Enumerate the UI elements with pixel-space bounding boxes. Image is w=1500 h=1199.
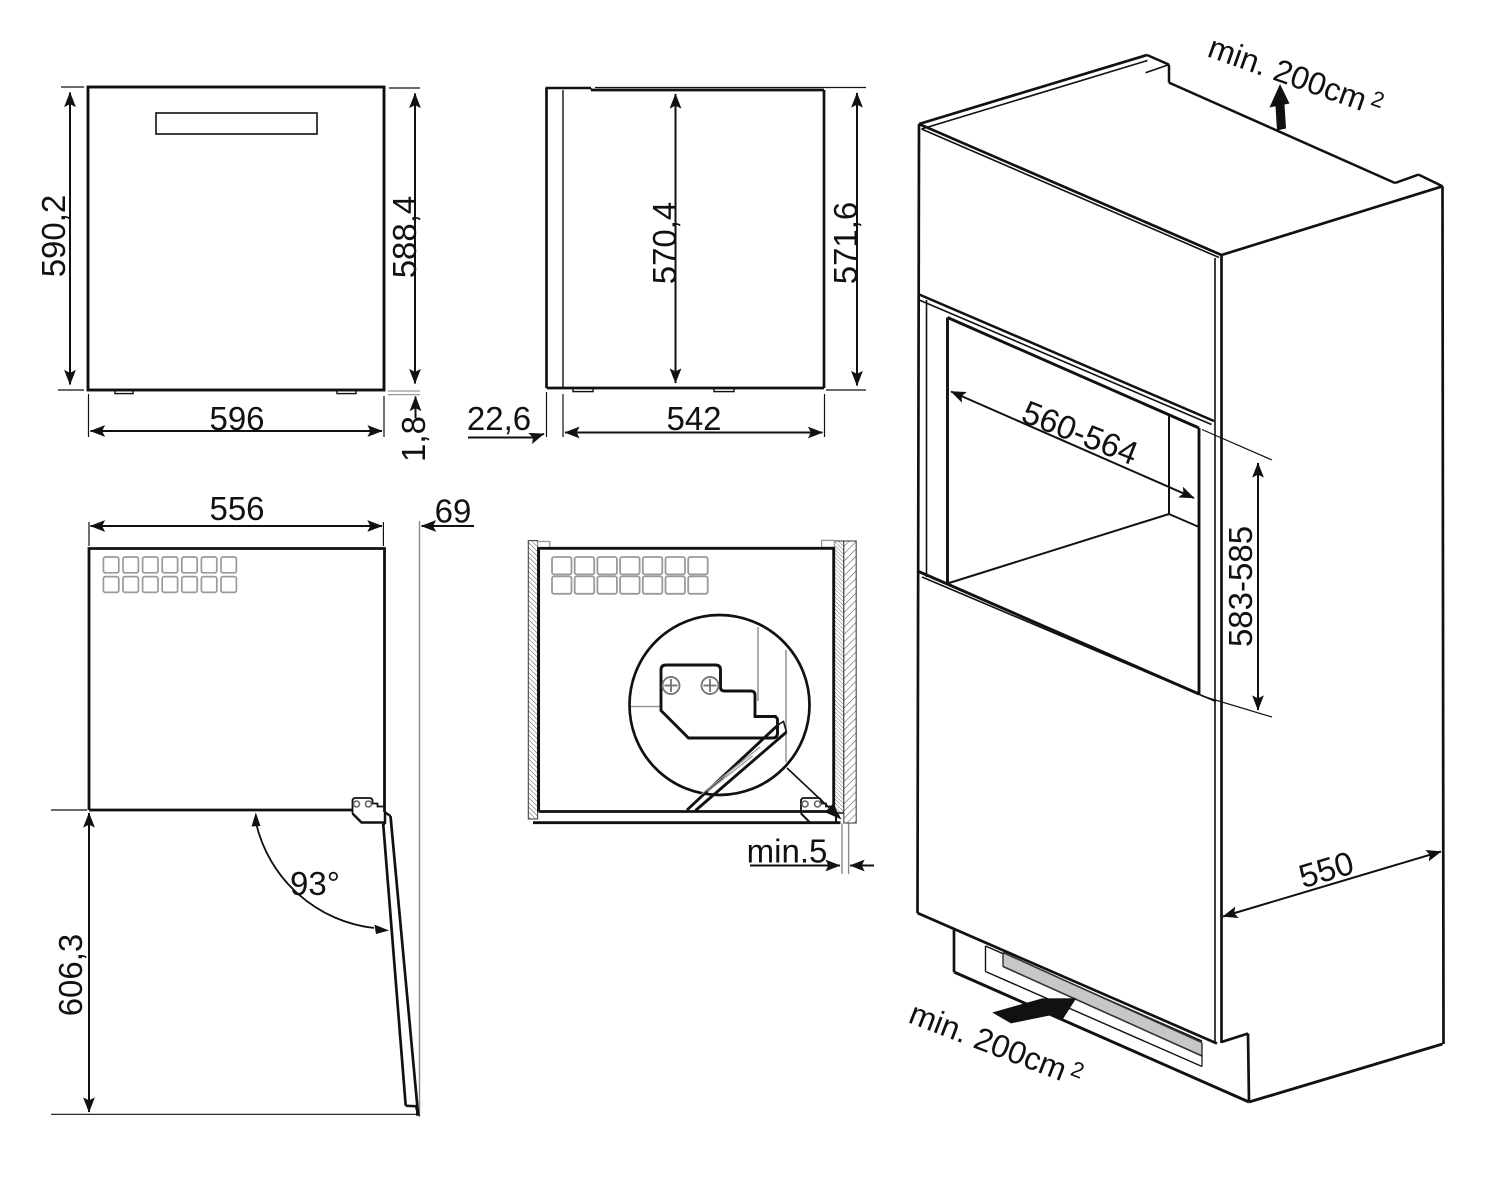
svg-text:583-585: 583-585 — [1222, 526, 1259, 647]
svg-text:93°: 93° — [290, 865, 340, 902]
svg-text:570,4: 570,4 — [646, 202, 683, 285]
svg-text:588,4: 588,4 — [386, 196, 423, 279]
svg-text:1,8: 1,8 — [395, 416, 432, 462]
svg-text:590,2: 590,2 — [35, 195, 72, 278]
svg-text:596: 596 — [209, 400, 264, 437]
svg-text:69: 69 — [435, 493, 472, 530]
svg-text:22,6: 22,6 — [467, 400, 531, 437]
svg-text:606,3: 606,3 — [52, 934, 89, 1017]
svg-text:556: 556 — [209, 490, 264, 527]
svg-text:542: 542 — [666, 400, 721, 437]
svg-text:min.5: min.5 — [747, 833, 828, 870]
svg-text:571,6: 571,6 — [827, 202, 864, 285]
